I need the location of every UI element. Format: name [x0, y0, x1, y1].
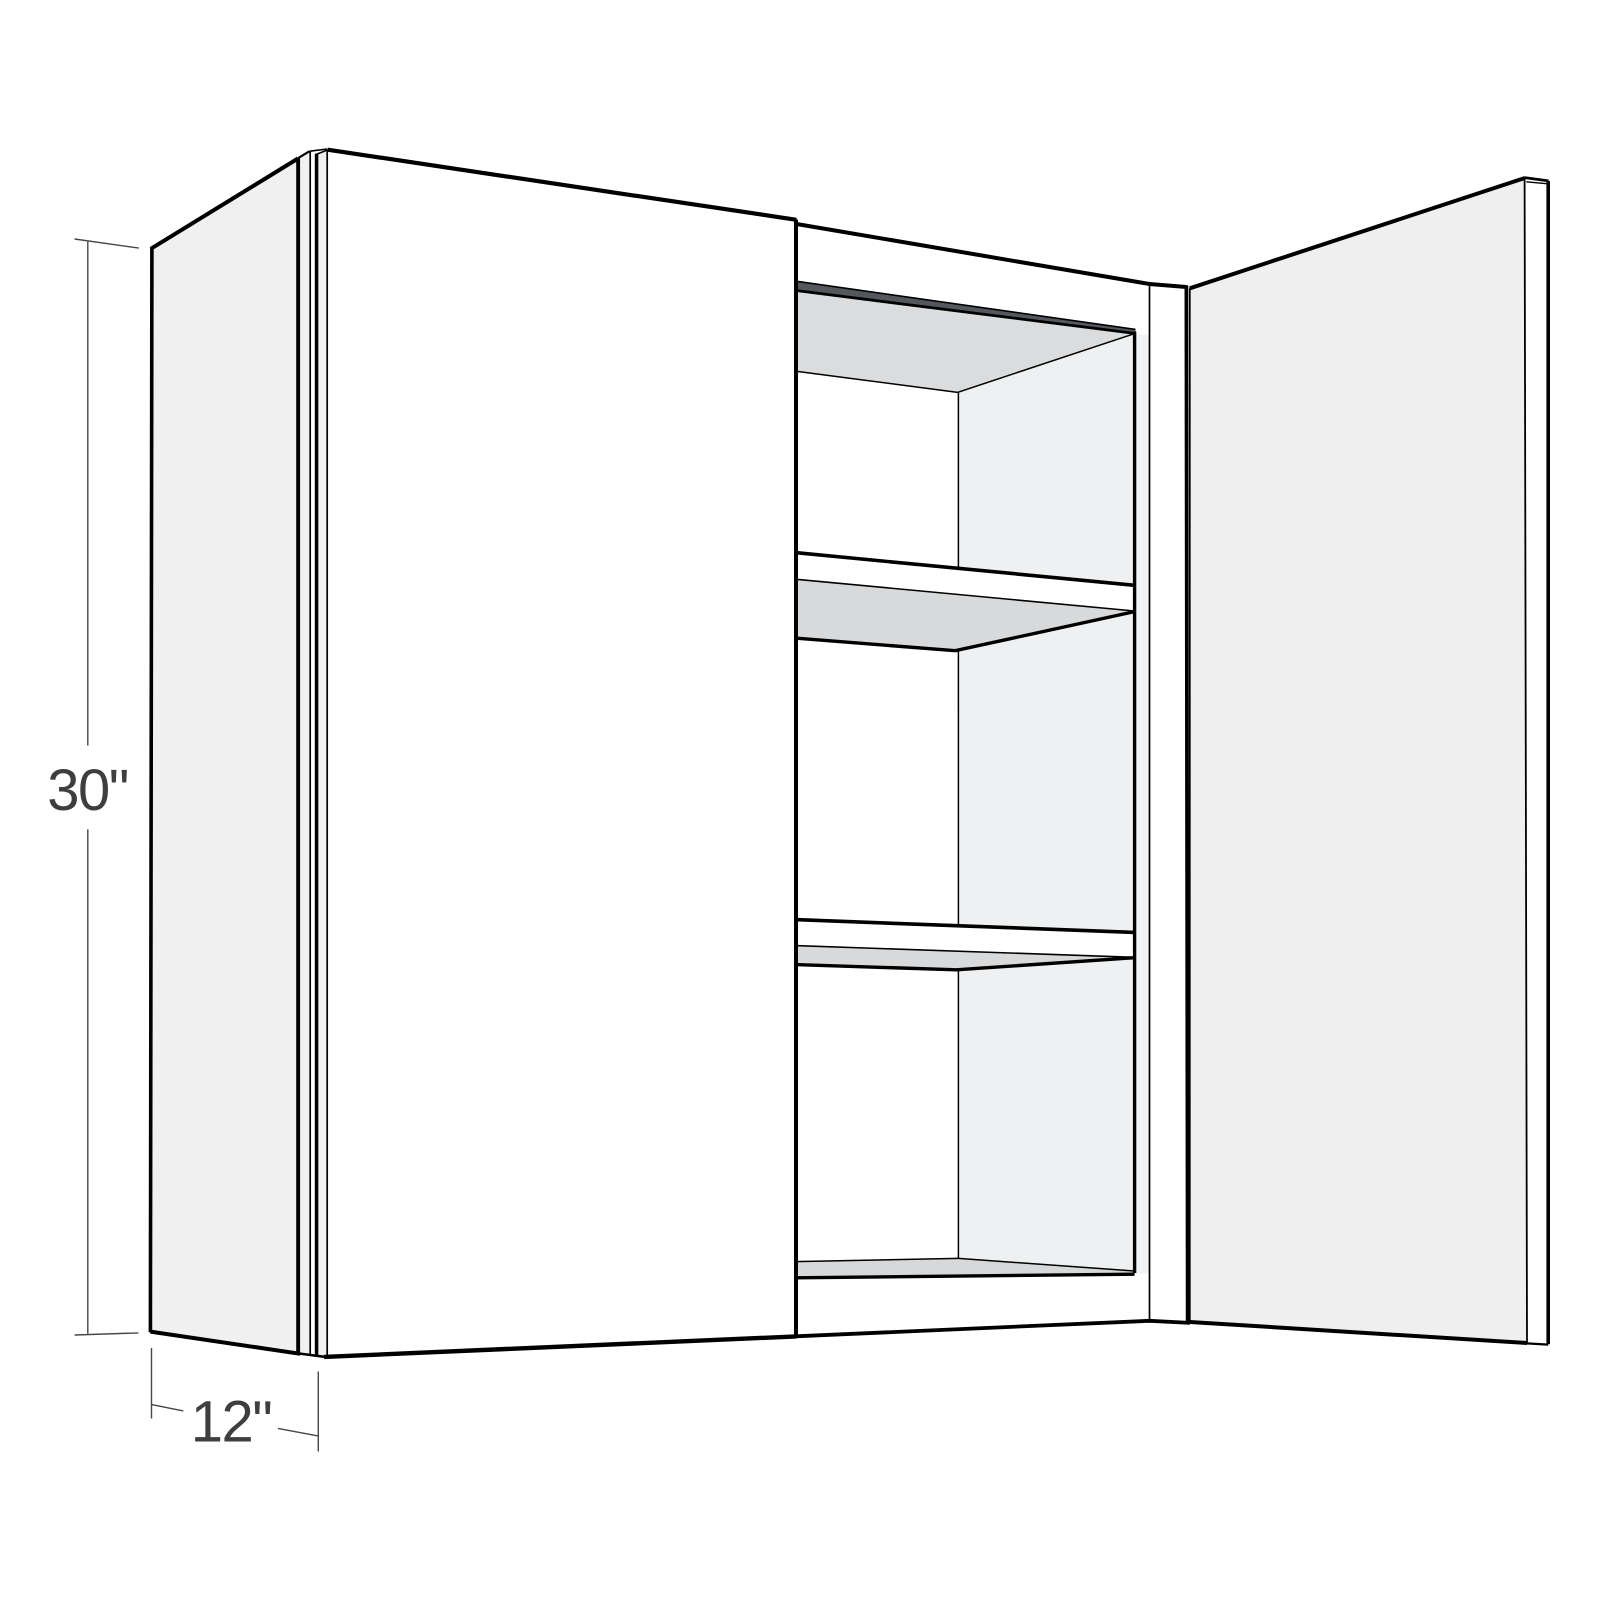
svg-text:12": 12" [191, 1390, 272, 1455]
svg-text:30": 30" [47, 758, 128, 823]
